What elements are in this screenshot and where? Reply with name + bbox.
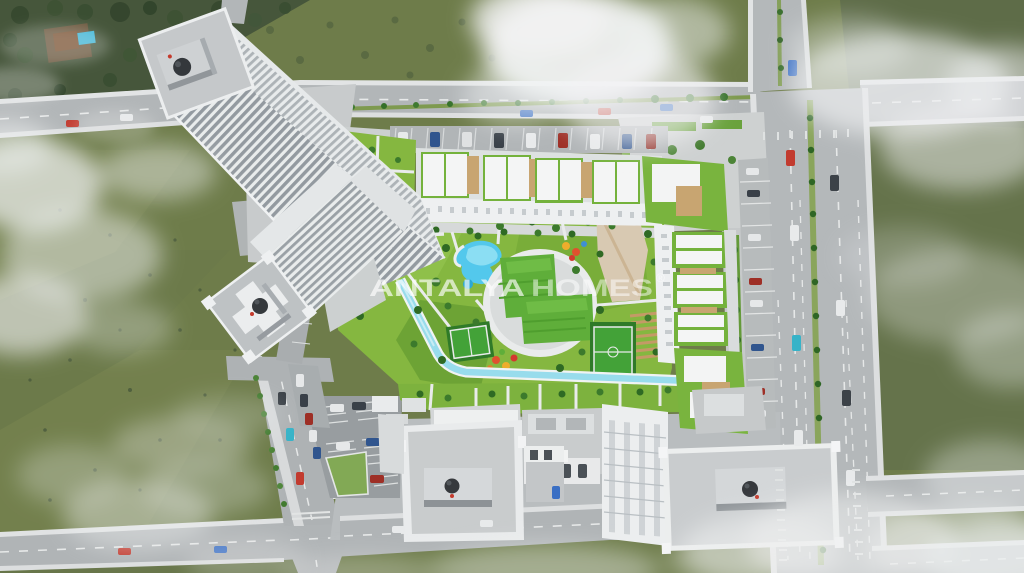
svg-text:ANTALYA: ANTALYA bbox=[369, 275, 525, 302]
svg-text:®: ® bbox=[656, 271, 665, 285]
svg-text:HOMES: HOMES bbox=[531, 275, 653, 302]
